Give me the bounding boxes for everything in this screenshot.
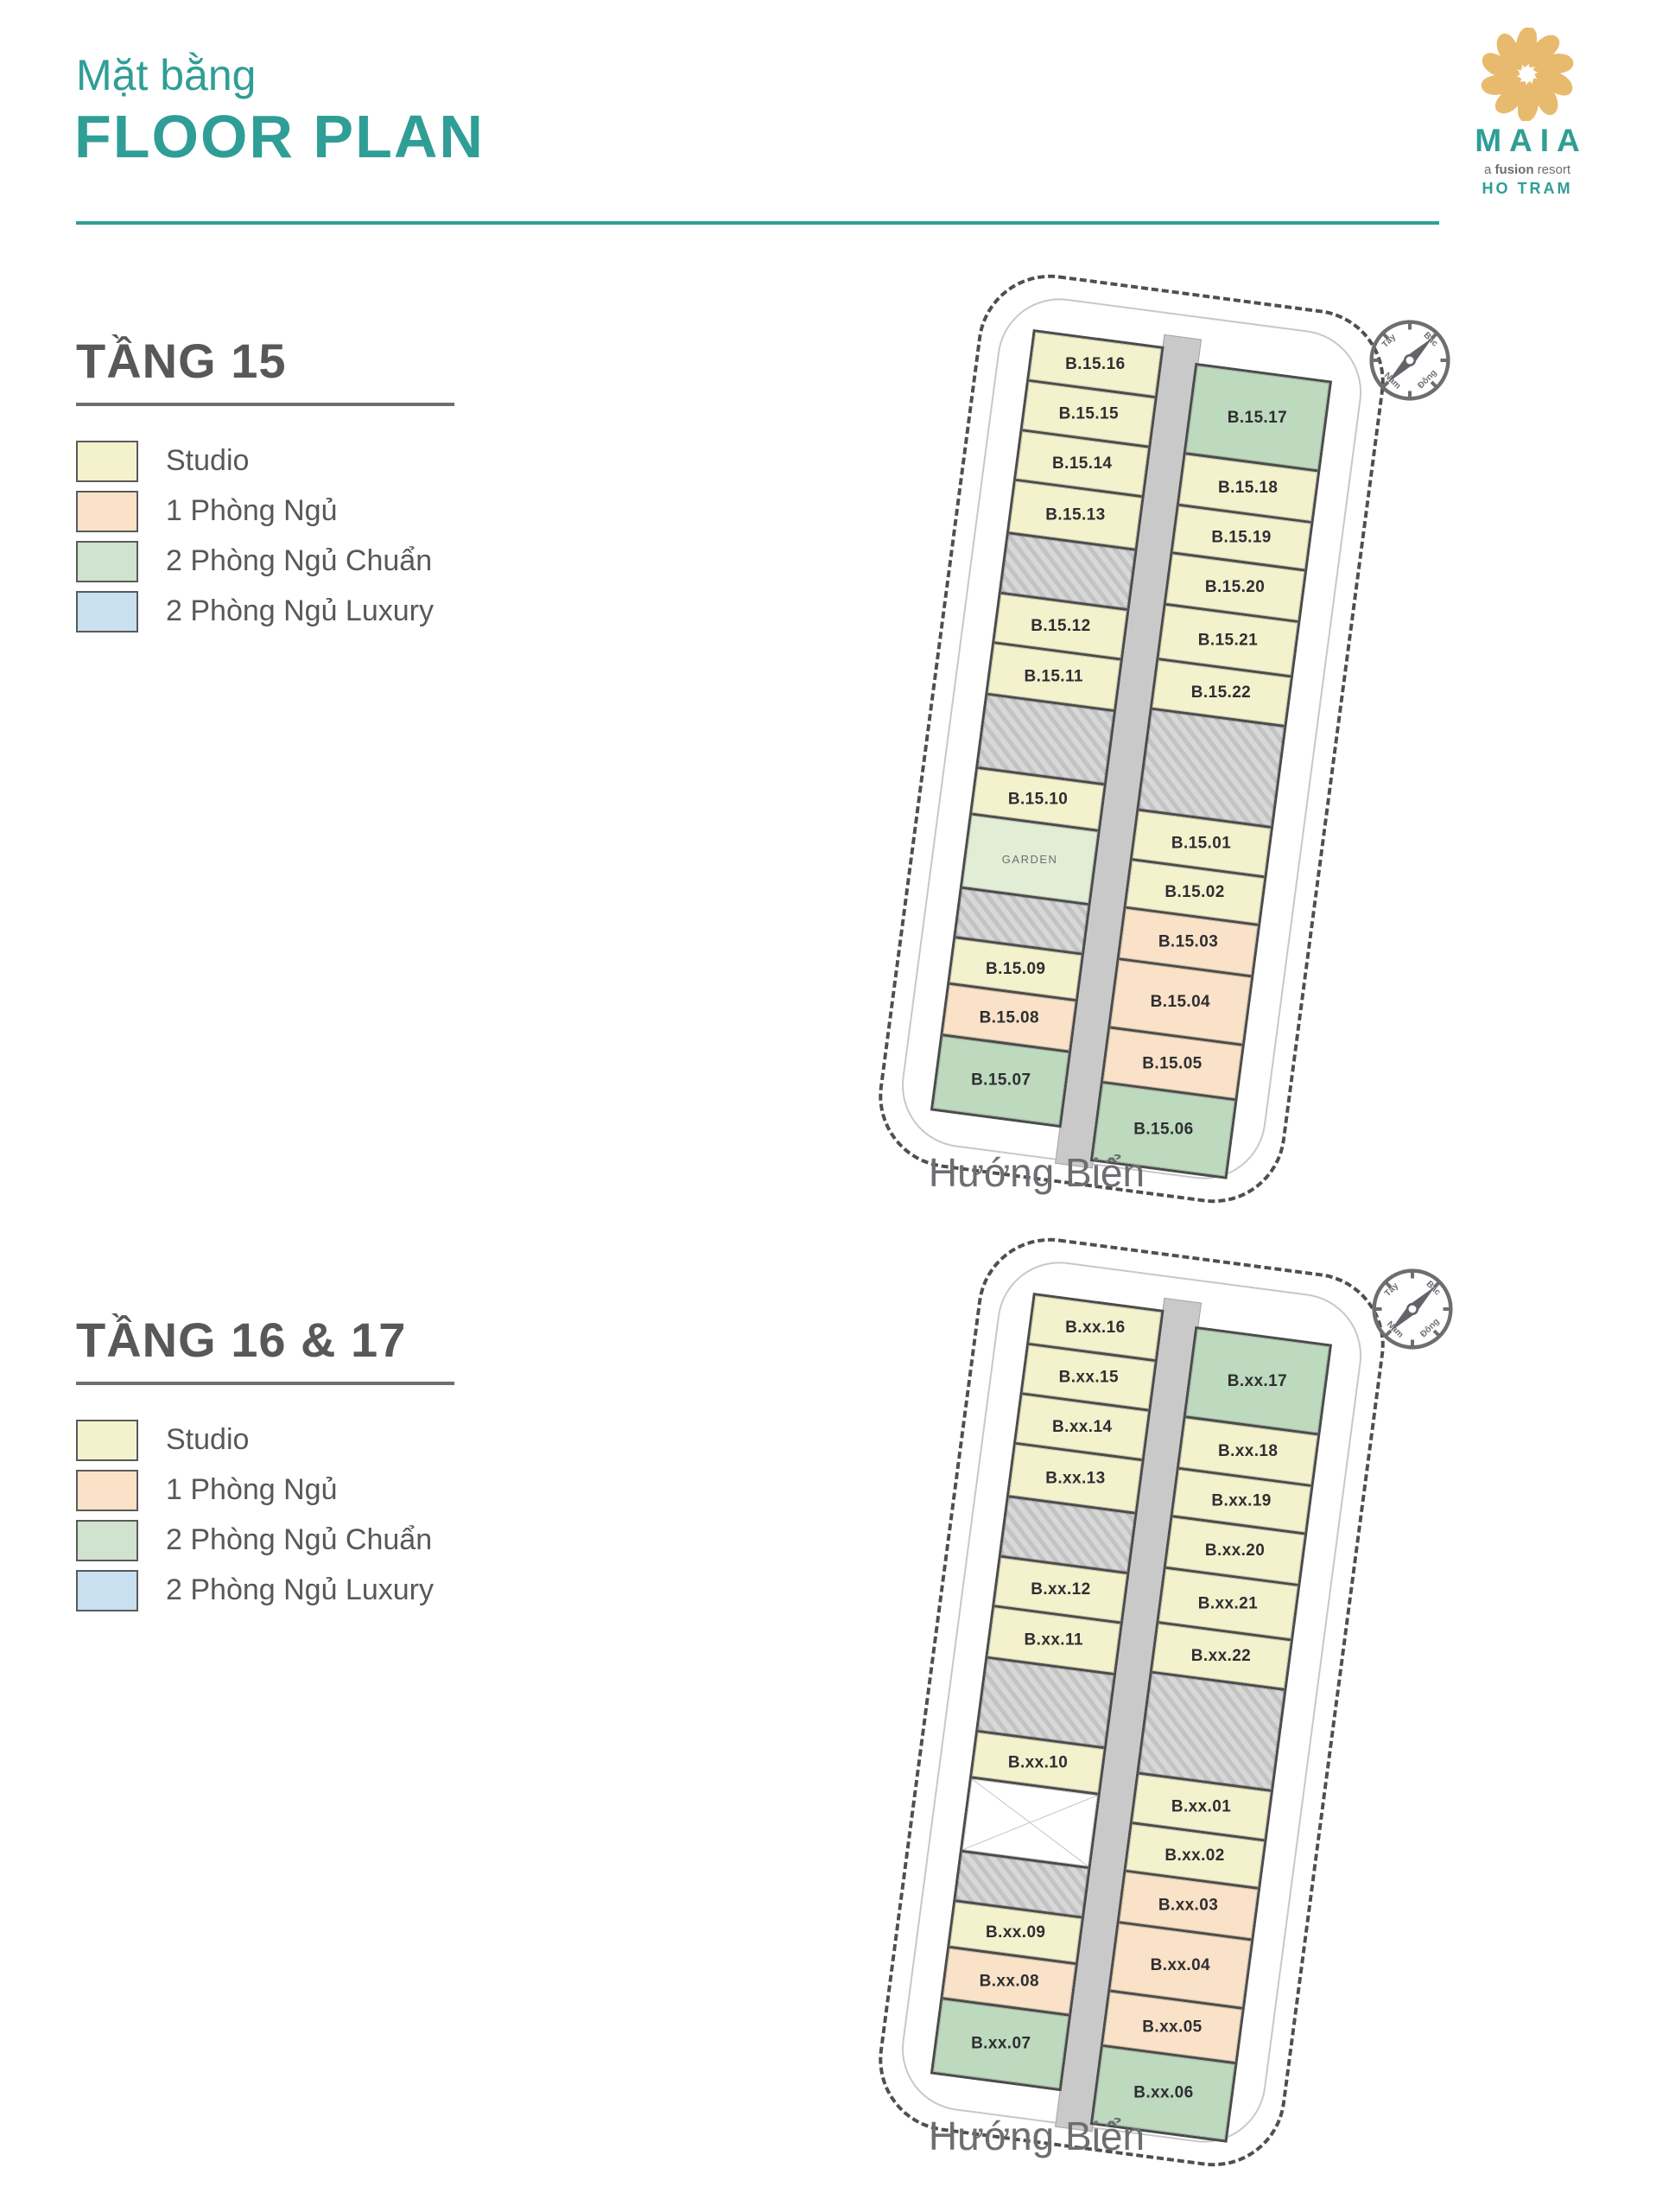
unit-B.15.07: B.15.07 [933,1036,1069,1124]
maia-logo: MAIA a fusion resort HO TRAM [1456,28,1598,198]
core-block [1139,710,1284,829]
legend-swatch [76,1470,138,1511]
legend-swatch [76,1520,138,1561]
unit-label: B.xx.06 [1134,2084,1194,2103]
legend-label: 2 Phòng Ngủ Luxury [166,594,434,628]
unit-label: B.xx.12 [1031,1580,1090,1599]
floor-plan-16-17: B.xx.16B.xx.15B.xx.14B.xx.13B.xx.12B.xx.… [890,1227,1374,2177]
legend-label: 2 Phòng Ngủ Chuẩn [166,1523,432,1557]
compass: Bắc Đông Nam Tây [1365,1262,1460,1357]
section-title: TẦNG 16 & 17 [76,1312,612,1368]
legend-item: 2 Phòng Ngủ Luxury [76,1570,612,1611]
unit-B.xx.17: B.xx.17 [1185,1329,1329,1435]
unit-label: B.15.06 [1134,1121,1194,1140]
unit-label: B.xx.17 [1228,1371,1287,1390]
unit-label: B.15.14 [1052,454,1112,473]
legend-item: 2 Phòng Ngủ Luxury [76,591,612,632]
sea-direction-label: Hướng Biển [890,1149,1184,1196]
section-title: TẦNG 15 [76,333,612,389]
legend-label: Studio [166,444,249,478]
compass: Bắc Đông Nam Tây [1362,313,1457,408]
legend-swatch [76,1570,138,1611]
page-title: FLOOR PLAN [74,102,485,171]
unit-label: B.15.20 [1205,578,1265,597]
unit-label: B.15.17 [1228,408,1287,427]
legend: Studio 1 Phòng Ngủ 2 Phòng Ngủ Chuẩn 2 P… [76,1420,612,1611]
legend-label: 1 Phòng Ngủ [166,494,338,528]
unit-label: B.15.05 [1143,1054,1203,1073]
section-floor-16-17: TẦNG 16 & 17 Studio 1 Phòng Ngủ 2 Phòng … [76,1312,612,1620]
unit-label: B.xx.04 [1151,1956,1210,1975]
legend-label: 2 Phòng Ngủ Chuẩn [166,544,432,578]
section-floor-15: TẦNG 15 Studio 1 Phòng Ngủ 2 Phòng Ngủ C… [76,333,612,641]
unit-label: B.xx.03 [1158,1896,1218,1915]
unit-label: B.15.13 [1045,505,1105,524]
unit-label: B.xx.05 [1143,2018,1203,2037]
unit-label: B.xx.08 [979,1972,1038,1991]
legend-label: 1 Phòng Ngủ [166,1473,338,1507]
unit-label: B.15.04 [1151,993,1210,1012]
logo-location: HO TRAM [1456,180,1598,198]
legend-item: 1 Phòng Ngủ [76,1470,612,1511]
unit-label: B.15.15 [1058,404,1118,423]
unit-label: B.xx.01 [1171,1797,1231,1816]
flower-icon [1481,28,1574,121]
unit-label: B.xx.15 [1058,1368,1118,1387]
unit-label: B.xx.22 [1191,1647,1251,1666]
unit-B.xx.07: B.xx.07 [933,1999,1069,2088]
legend-item: 2 Phòng Ngủ Chuẩn [76,1520,612,1561]
unit-label: B.15.10 [1008,790,1068,809]
unit-label: B.15.22 [1191,683,1251,702]
unit-label: B.15.12 [1031,617,1090,636]
legend-item: 1 Phòng Ngủ [76,491,612,532]
legend-swatch [76,591,138,632]
unit-label: B.15.21 [1198,631,1258,650]
section-underline [76,1382,454,1385]
unit-label: B.15.09 [986,959,1045,978]
legend-label: Studio [166,1423,249,1457]
legend-label: 2 Phòng Ngủ Luxury [166,1573,434,1607]
unit-label: B.xx.02 [1165,1847,1225,1866]
unit-label: B.15.16 [1065,354,1125,373]
unit-label: B.xx.18 [1218,1442,1278,1461]
header-subtitle: Mặt bằng [76,50,256,100]
unit-label: B.xx.13 [1045,1469,1105,1488]
legend: Studio 1 Phòng Ngủ 2 Phòng Ngủ Chuẩn 2 P… [76,441,612,632]
compass-hub [1405,355,1415,365]
unit-label: B.xx.09 [986,1923,1045,1942]
unit-label: B.xx.20 [1205,1541,1265,1560]
logo-tagline: a fusion resort [1456,162,1598,177]
legend-item: Studio [76,1420,612,1461]
unit-B.15.17: B.15.17 [1185,365,1329,472]
core-block [1139,1674,1284,1792]
unit-label: B.xx.16 [1065,1318,1125,1337]
header-divider [76,221,1439,225]
unit-label: B.15.02 [1165,883,1225,902]
unit-label: B.xx.10 [1008,1753,1068,1772]
garden-label: GARDEN [1002,853,1058,866]
unit-label: B.15.07 [971,1071,1031,1090]
unit-label: B.xx.07 [971,2035,1031,2054]
section-underline [76,403,454,406]
unit-label: B.xx.14 [1052,1417,1112,1436]
page: Mặt bằng FLOOR PLAN MAIA a fusion resort [0,0,1669,2212]
unit-label: B.xx.21 [1198,1594,1258,1613]
compass-hub [1407,1304,1418,1314]
unit-label: B.15.01 [1171,834,1231,853]
floor-plan-15: B.15.16B.15.15B.15.14B.15.13B.15.12B.15.… [890,264,1374,1214]
logo-name: MAIA [1456,123,1598,159]
unit-label: B.15.19 [1212,528,1272,547]
unit-label: B.15.03 [1158,932,1218,951]
sea-direction-label: Hướng Biển [890,2113,1184,2159]
unit-label: B.15.11 [1025,667,1083,686]
legend-swatch [76,441,138,482]
unit-label: B.15.08 [979,1008,1038,1027]
legend-swatch [76,541,138,582]
unit-label: B.xx.19 [1212,1491,1272,1510]
legend-item: Studio [76,441,612,482]
legend-item: 2 Phòng Ngủ Chuẩn [76,541,612,582]
legend-swatch [76,491,138,532]
legend-swatch [76,1420,138,1461]
unit-label: B.15.18 [1218,479,1278,498]
unit-label: B.xx.11 [1025,1630,1083,1649]
